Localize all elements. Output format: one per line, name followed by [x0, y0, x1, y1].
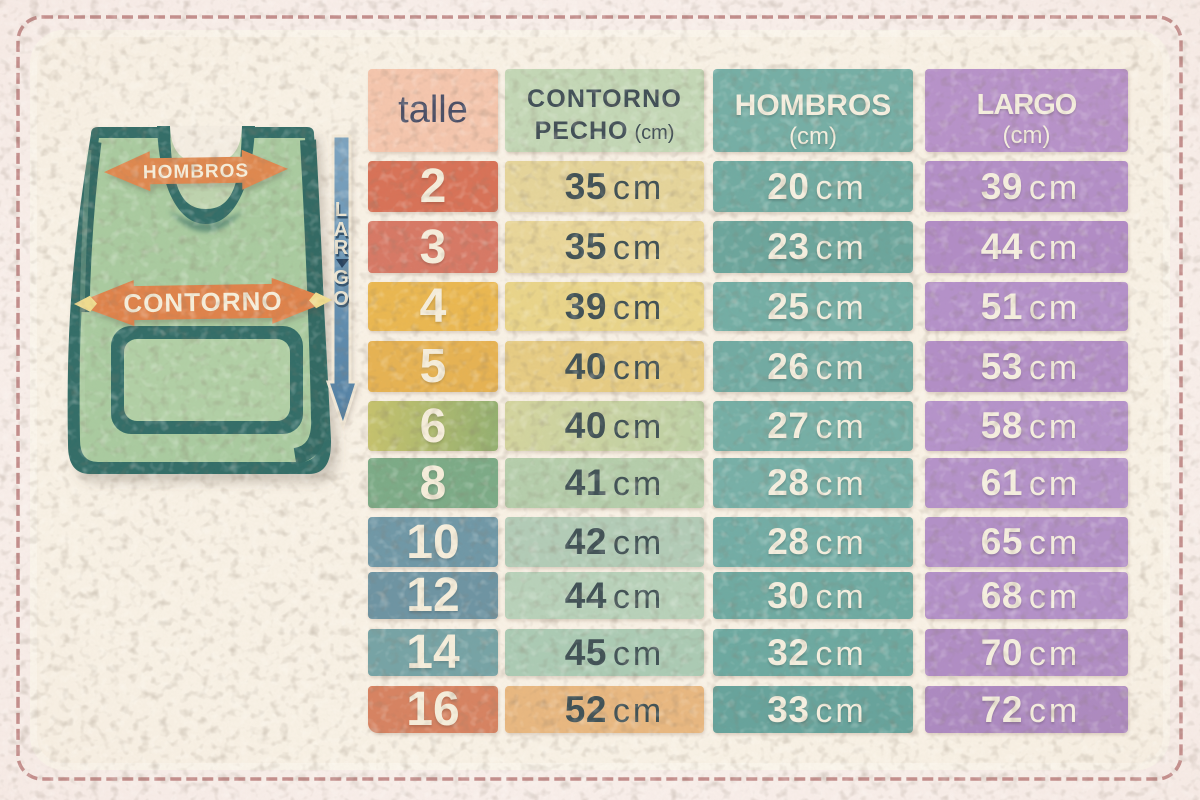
svg-text:O: O [333, 288, 349, 310]
svg-text:L: L [335, 199, 347, 221]
svg-text:HOMBROS: HOMBROS [143, 161, 250, 184]
svg-text:G: G [333, 267, 349, 289]
svg-text:R: R [334, 237, 349, 259]
svg-text:CONTORNO: CONTORNO [123, 286, 283, 318]
